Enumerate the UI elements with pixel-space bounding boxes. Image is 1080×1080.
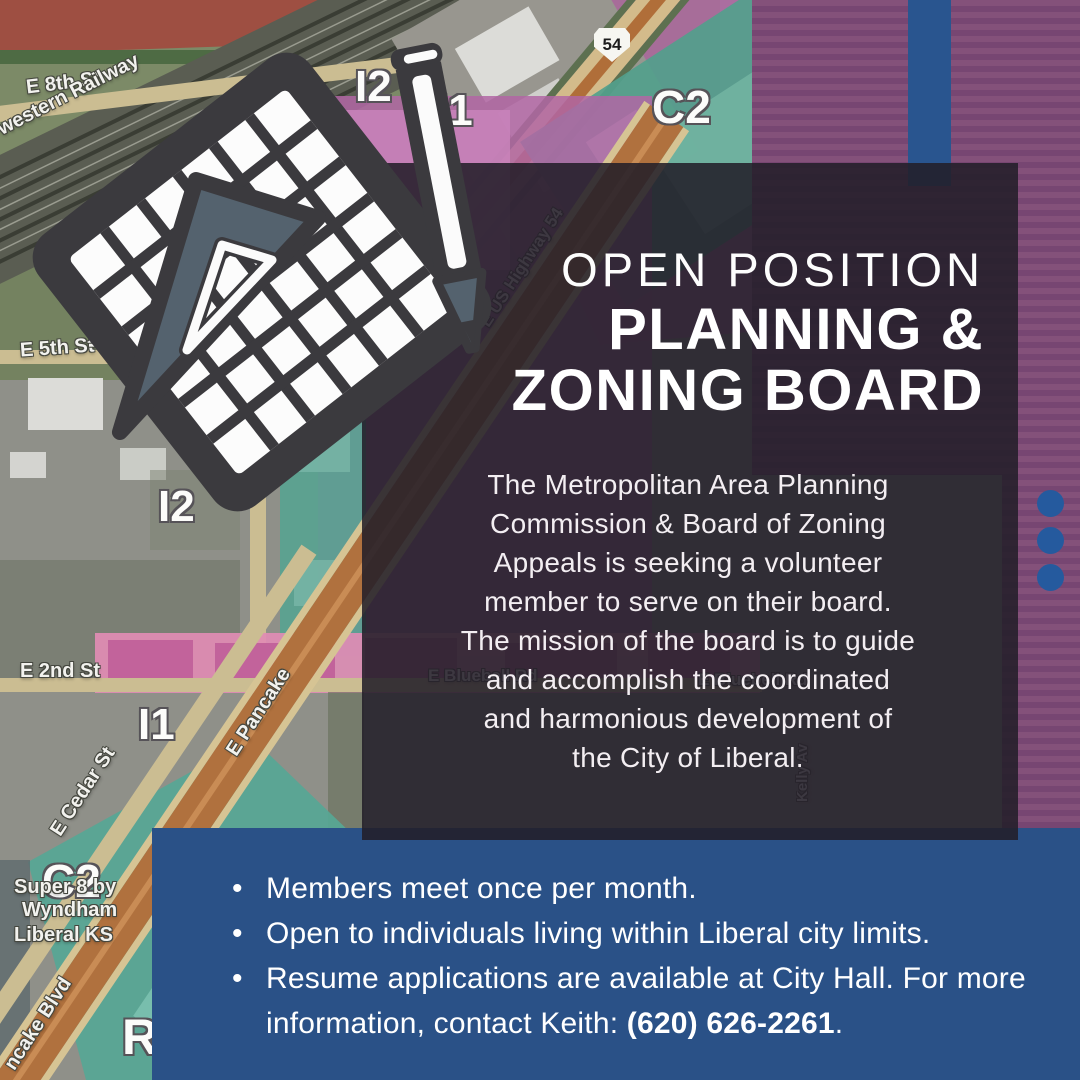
bullet-list: Members meet once per month. Open to ind… — [232, 866, 1060, 1046]
zone-label-i1-mid: I1 — [138, 700, 175, 750]
info-band: Members meet once per month. Open to ind… — [152, 828, 1080, 1080]
map-label-e-2nd-st: E 2nd St — [20, 660, 100, 683]
bullet-item-applications: Resume applications are available at Cit… — [232, 956, 1060, 1046]
drafting-tools-illustration — [0, 0, 520, 520]
accent-dot — [1037, 564, 1064, 591]
bullet-item-meetings: Members meet once per month. — [232, 866, 1060, 911]
bullet-item-eligibility: Open to individuals living within Libera… — [232, 911, 1060, 956]
highway-54-shield-icon: 54 — [594, 28, 630, 62]
map-label-pancake-blvd: ncake Blvd — [0, 973, 77, 1074]
bullet-text: Members meet once per month. — [266, 872, 697, 905]
map-label-e-pancake: E Pancake — [222, 664, 296, 760]
flyer-canvas: E 8th St western Railway I2 I1 C2 54 E 5… — [0, 0, 1080, 1080]
map-label-super-8: Super 8 by — [14, 876, 116, 899]
accent-dot — [1037, 527, 1064, 554]
body-line: and accomplish the coordinated — [392, 660, 984, 699]
body-line: The mission of the board is to guide — [392, 621, 984, 660]
bullet-text: Open to individuals living within Libera… — [266, 917, 930, 950]
body-line: the City of Liberal. — [392, 738, 984, 777]
accent-dots — [1037, 490, 1064, 601]
body-line: and harmonious development of — [392, 699, 984, 738]
accent-bar — [908, 0, 951, 186]
body-line: member to serve on their board. — [392, 582, 984, 621]
map-label-liberal-ks: Liberal KS — [14, 924, 113, 947]
map-label-wyndham: Wyndham — [22, 899, 117, 922]
map-label-e-cedar-st: E Cedar St — [46, 743, 120, 840]
bullet-text: . — [835, 1007, 844, 1040]
zone-label-c2-top: C2 — [652, 80, 711, 134]
contact-phone: (620) 626-2261 — [627, 1007, 835, 1040]
accent-dot — [1037, 490, 1064, 517]
body-line: Appeals is seeking a volunteer — [392, 543, 984, 582]
